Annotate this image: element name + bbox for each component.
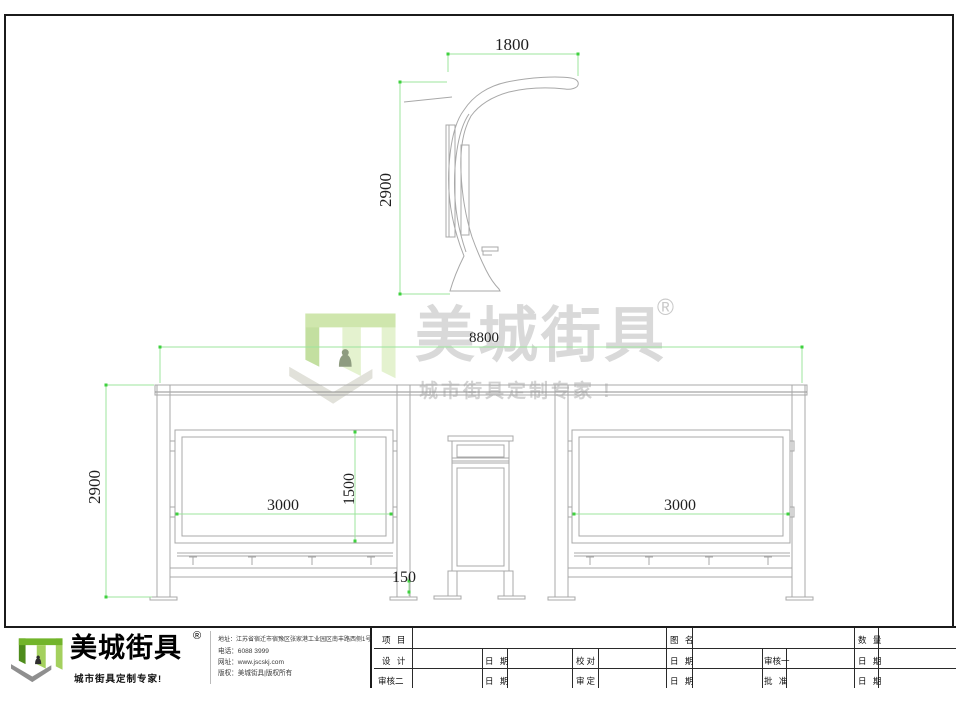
- dimension-ticks: [105, 53, 804, 599]
- company-info-lines: 地址：江苏省宿迁市宿豫区张家港工业园区南丰路西侧1号 电话：6088 3999 …: [218, 635, 370, 679]
- left-lower-rail: [170, 568, 397, 577]
- column-1: [157, 385, 170, 597]
- panel-bracket: [393, 507, 397, 517]
- table-line: [762, 648, 763, 688]
- base-plate-1: [150, 597, 177, 600]
- column-4: [792, 385, 805, 597]
- table-line: [482, 648, 483, 688]
- label-reviewer1: 审核一: [764, 655, 790, 667]
- side-bench-bracket-leg: [483, 251, 492, 255]
- company-logo-m-icon: [11, 632, 67, 684]
- panel-bracket: [568, 441, 572, 451]
- dimension-labels: 1800 2900 8800 2900 3000 1500 3000 150: [85, 35, 696, 586]
- table-line: [412, 628, 413, 688]
- dim-right-panel-width: 3000: [664, 497, 696, 514]
- label-date: 日 期: [858, 675, 883, 687]
- base-plate-2: [390, 597, 417, 600]
- table-line: [572, 648, 573, 688]
- label-proofread: 校对: [576, 655, 597, 667]
- side-bench-bracket: [482, 247, 498, 251]
- panel-bracket: [170, 441, 175, 451]
- side-ad-panel-edge: [446, 125, 455, 237]
- company-registered-icon: ®: [193, 630, 201, 642]
- roof-band: [155, 385, 807, 395]
- left-panel-outer: [175, 430, 393, 543]
- right-panel-inner: [579, 437, 783, 536]
- panel-bracket: [170, 507, 175, 517]
- base-plate-4: [786, 597, 813, 600]
- label-ratify: 批 准: [764, 675, 789, 687]
- title-strip: 美城街具 ® 城市街具定制专家! 地址：江苏省宿迁市宿豫区张家港工业园区南丰路西…: [4, 626, 956, 688]
- table-line: [666, 628, 667, 688]
- panel-bracket: [568, 507, 572, 517]
- dim-side-width: 1800: [495, 35, 529, 54]
- label-date: 日 期: [858, 655, 883, 667]
- dim-panel-height: 1500: [341, 473, 358, 505]
- logo-info-divider: [210, 631, 211, 684]
- company-tagline: 城市街具定制专家!: [74, 671, 162, 685]
- company-address: 地址：江苏省宿迁市宿豫区张家港工业园区南丰路西侧1号: [218, 635, 370, 646]
- company-copyright: 版权：美城街具|版权所有: [218, 668, 370, 679]
- dimension-lines: [106, 54, 802, 597]
- front-view-drawing: [150, 385, 813, 600]
- cad-drawing-canvas: 1800 2900 8800 2900 3000 1500 3000 150: [0, 0, 960, 704]
- right-lower-rail: [568, 568, 792, 577]
- label-reviewer2: 审核二: [378, 675, 404, 687]
- label-project: 项 目: [382, 634, 407, 646]
- table-line: [374, 648, 956, 649]
- table-line: [374, 668, 956, 669]
- dim-front-height: 2900: [85, 470, 104, 504]
- label-design: 设 计: [382, 655, 407, 667]
- table-line: [598, 648, 599, 688]
- company-website: 网址：www.jscskj.com: [218, 657, 370, 668]
- label-approver: 审定: [576, 675, 597, 687]
- middle-totem: [434, 436, 525, 599]
- company-brand-text: 美城街具: [70, 635, 182, 662]
- base-plate-3: [548, 597, 575, 600]
- canopy-mast-outline: [449, 77, 579, 291]
- label-quantity: 数 量: [858, 634, 883, 646]
- label-date: 日 期: [485, 675, 510, 687]
- panel-bracket: [393, 441, 397, 451]
- label-date: 日 期: [670, 655, 695, 667]
- dim-left-panel-width: 3000: [267, 497, 299, 514]
- right-panel-outer: [572, 430, 790, 543]
- side-view-drawing: [404, 77, 578, 291]
- label-drawing-name: 图 名: [670, 634, 695, 646]
- column-3: [555, 385, 568, 597]
- company-logo-block: 美城街具 ® 城市街具定制专家! 地址：江苏省宿迁市宿豫区张家港工业园区南丰路西…: [4, 628, 372, 688]
- left-bench: [177, 553, 393, 565]
- label-date: 日 期: [485, 655, 510, 667]
- dim-side-height: 2900: [376, 173, 395, 207]
- right-bench: [574, 553, 790, 565]
- column-2: [397, 385, 410, 597]
- company-phone: 电话：6088 3999: [218, 646, 370, 657]
- dim-overall-width: 8800: [469, 330, 499, 346]
- title-block-table: 项 目 图 名 数 量 设 计 日 期 校对 日 期 审核一 日 期 审核二 日…: [374, 628, 956, 688]
- canopy-back-edge: [404, 97, 452, 102]
- label-date: 日 期: [670, 675, 695, 687]
- dim-rail-gap: 150: [392, 569, 416, 586]
- table-line: [854, 628, 855, 688]
